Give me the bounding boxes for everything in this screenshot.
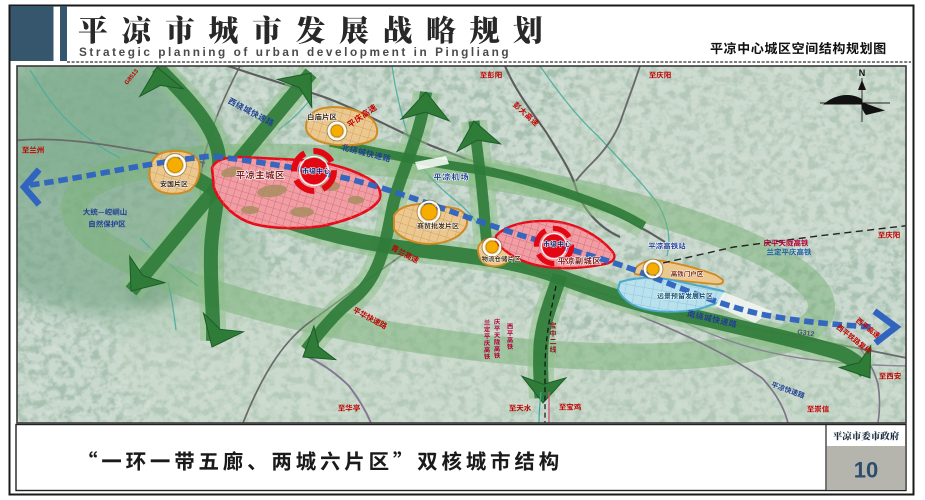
svg-text:N: N: [859, 68, 866, 78]
svg-text:Strategic planning of urban de: Strategic planning of urban development …: [79, 45, 511, 59]
svg-text:10: 10: [854, 458, 878, 483]
